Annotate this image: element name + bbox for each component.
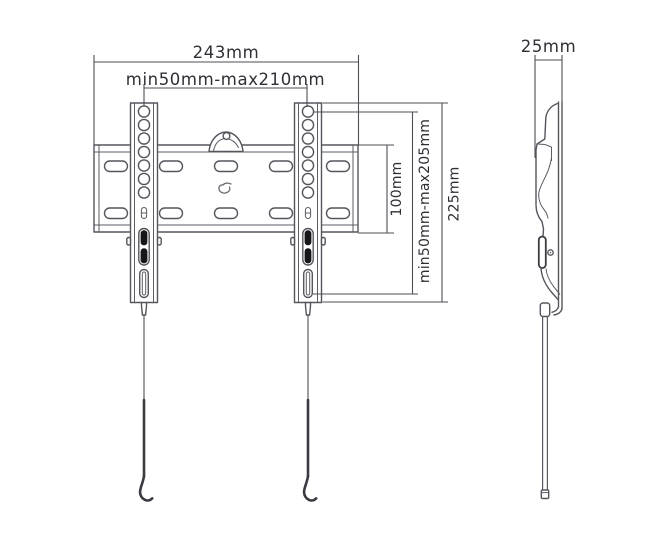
dim-label-plate-height: 100mm	[389, 162, 405, 217]
plate-slot	[327, 208, 350, 219]
wall-mount-drawing: 243mm min50mm-max210mm 100mm min50mm-max…	[0, 0, 664, 540]
side-view: 25mm	[521, 37, 577, 499]
side-bracket-profile	[536, 104, 560, 300]
cord-cap	[540, 303, 549, 317]
cord-end	[541, 490, 548, 499]
dim-label-overall-width: 243mm	[193, 43, 260, 62]
side-pull-cord	[540, 303, 549, 499]
plate-slot	[160, 161, 183, 172]
dimension-depth: 25mm	[521, 37, 577, 158]
bracket-right	[291, 103, 325, 500]
side-lock-latch	[539, 237, 546, 269]
plate-slot	[327, 161, 350, 172]
plate-slot	[215, 208, 238, 219]
plate-slot	[270, 208, 293, 219]
side-bottom-lip	[541, 268, 558, 300]
dim-label-bracket-height: 225mm	[447, 167, 463, 222]
bracket-left	[127, 103, 161, 500]
plate-slot	[270, 161, 293, 172]
side-wall-rail	[552, 102, 562, 315]
plate-slot	[105, 161, 128, 172]
top-arch-ornament	[209, 132, 243, 152]
dimension-plate-height: 100mm	[358, 145, 405, 233]
brand-logo-icon	[219, 183, 231, 193]
front-view: 243mm min50mm-max210mm 100mm min50mm-max…	[94, 43, 463, 500]
dim-label-hole-spacing-height: min50mm-max205mm	[417, 119, 433, 283]
plate-slot	[160, 208, 183, 219]
arch-hole	[223, 133, 230, 140]
dim-label-hole-spacing-width: min50mm-max210mm	[126, 70, 325, 89]
technical-drawing-page: 243mm min50mm-max210mm 100mm min50mm-max…	[0, 0, 664, 540]
dimension-hole-spacing-width: min50mm-max210mm	[126, 70, 325, 107]
dimension-hole-spacing-height: min50mm-max205mm	[313, 112, 433, 294]
dim-label-depth: 25mm	[521, 37, 577, 56]
plate-slot	[215, 161, 238, 172]
plate-slot	[105, 208, 128, 219]
